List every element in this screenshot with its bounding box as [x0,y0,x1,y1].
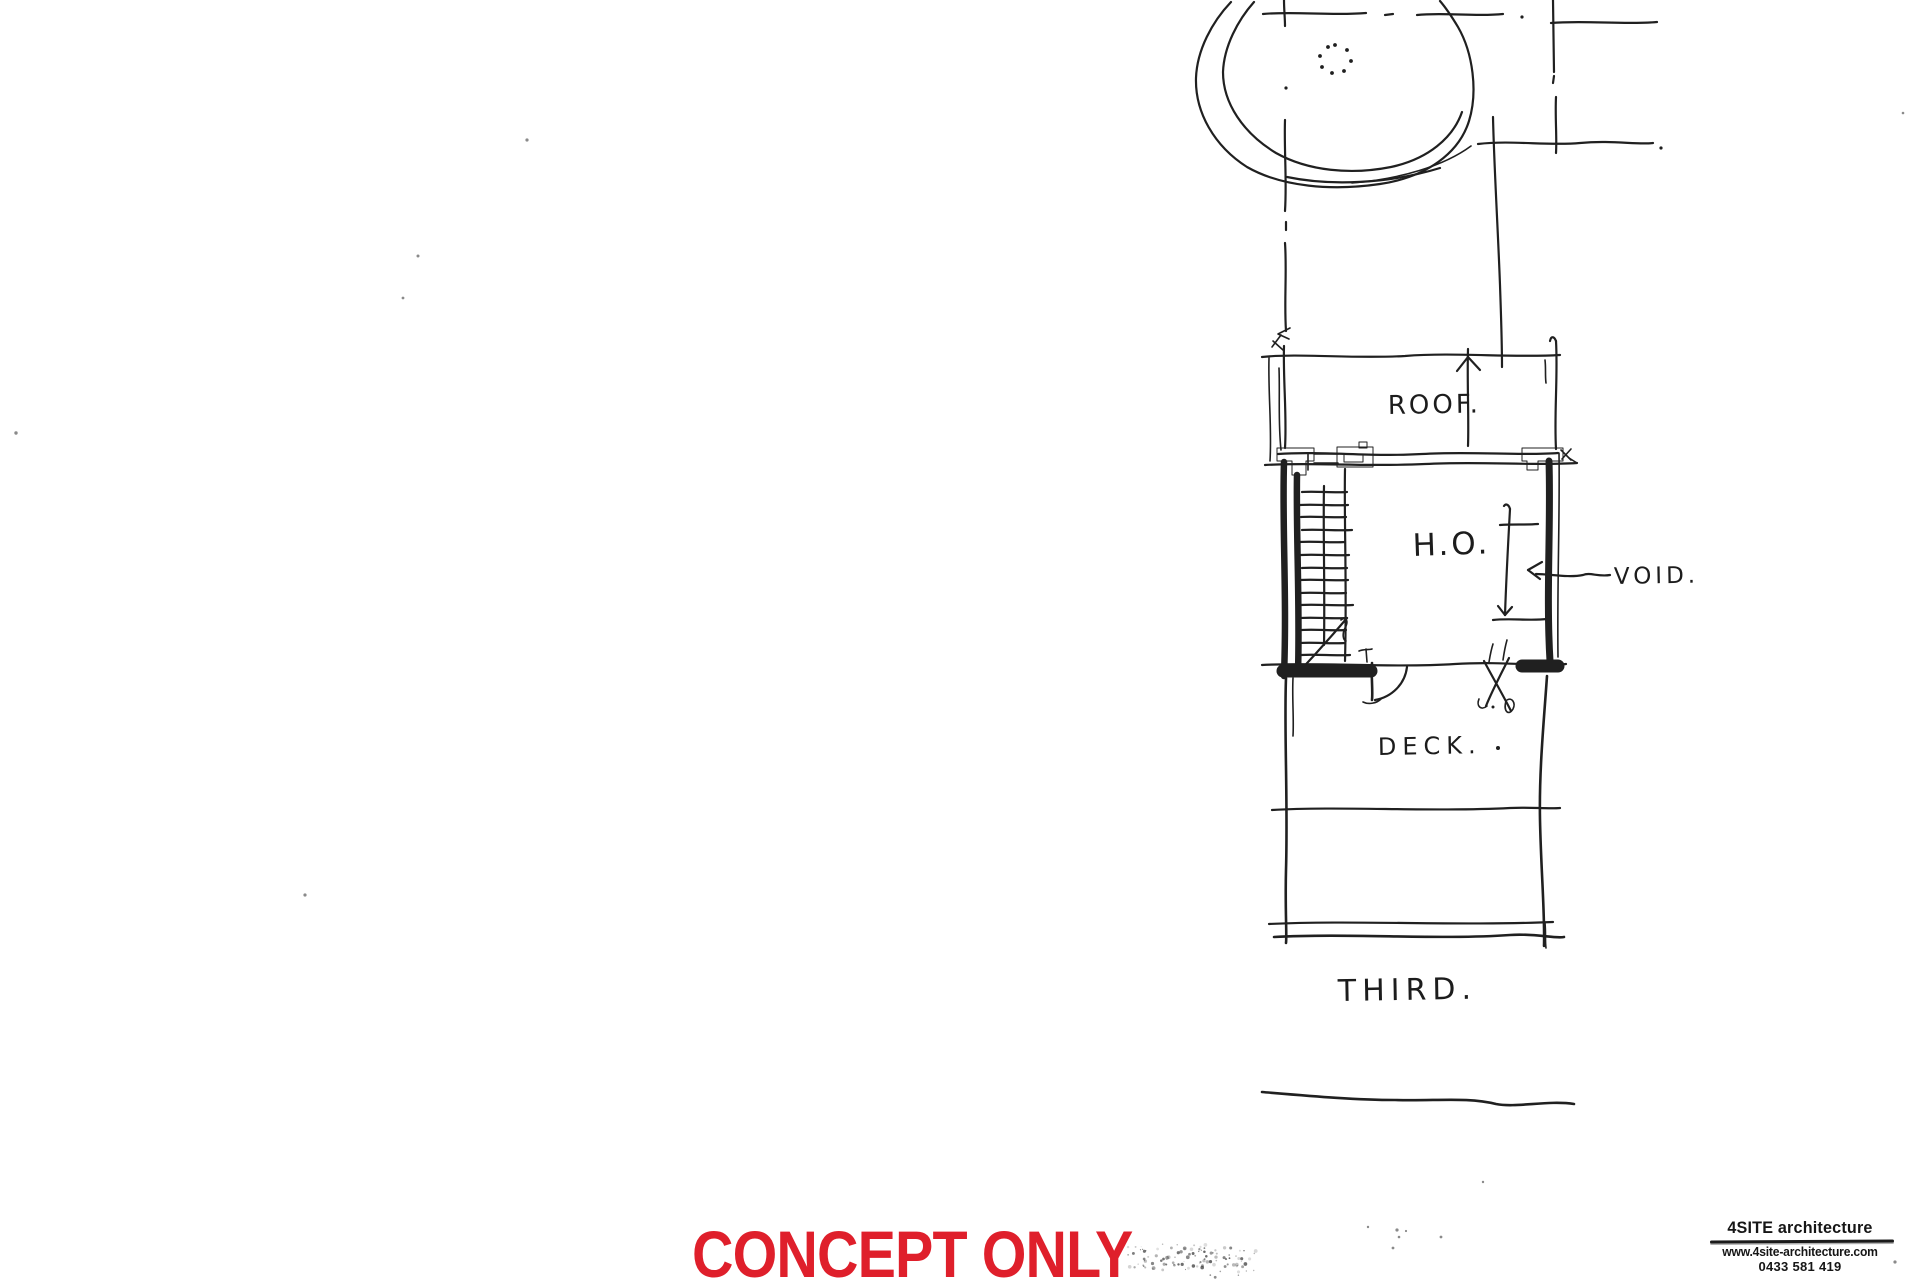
sketch-canvas: ROOF. H.O. VOID. DECK. THIRD. [0,0,1920,1280]
roof-label: ROOF. [1388,389,1482,421]
room-label: H.O. [1412,525,1491,564]
deck-label-stray-dot [1496,746,1500,750]
staircase [1297,453,1353,674]
floor-level-label: THIRD. [1337,972,1478,1009]
tree-sketch [1196,1,1474,187]
firm-website: www.4site-architecture.com [1703,1245,1897,1259]
void-label: VOID. [1614,563,1700,590]
deck-label: DECK. [1378,731,1482,761]
firm-title-block: 4SITE architecture www.4site-architectur… [1700,1218,1900,1274]
concept-only-stamp: CONCEPT ONLY [692,1216,1132,1280]
window-cross [1478,640,1514,712]
deck-outline [1269,676,1564,948]
scanned-sketch-sheet: ROOF. H.O. VOID. DECK. THIRD. CONCEPT ON… [0,0,1920,1280]
void-leader-arrow [1528,562,1610,579]
firm-phone: 0433 581 419 [1700,1259,1900,1274]
firm-name: 4SITE architecture [1705,1218,1895,1238]
firm-underline [1710,1239,1894,1243]
third-underline [1262,1092,1574,1105]
tree-dotted-center [1318,43,1353,75]
scan-specks [14,112,1904,1264]
pencil-scribble [1127,1243,1258,1279]
void-dimension [1493,505,1547,620]
